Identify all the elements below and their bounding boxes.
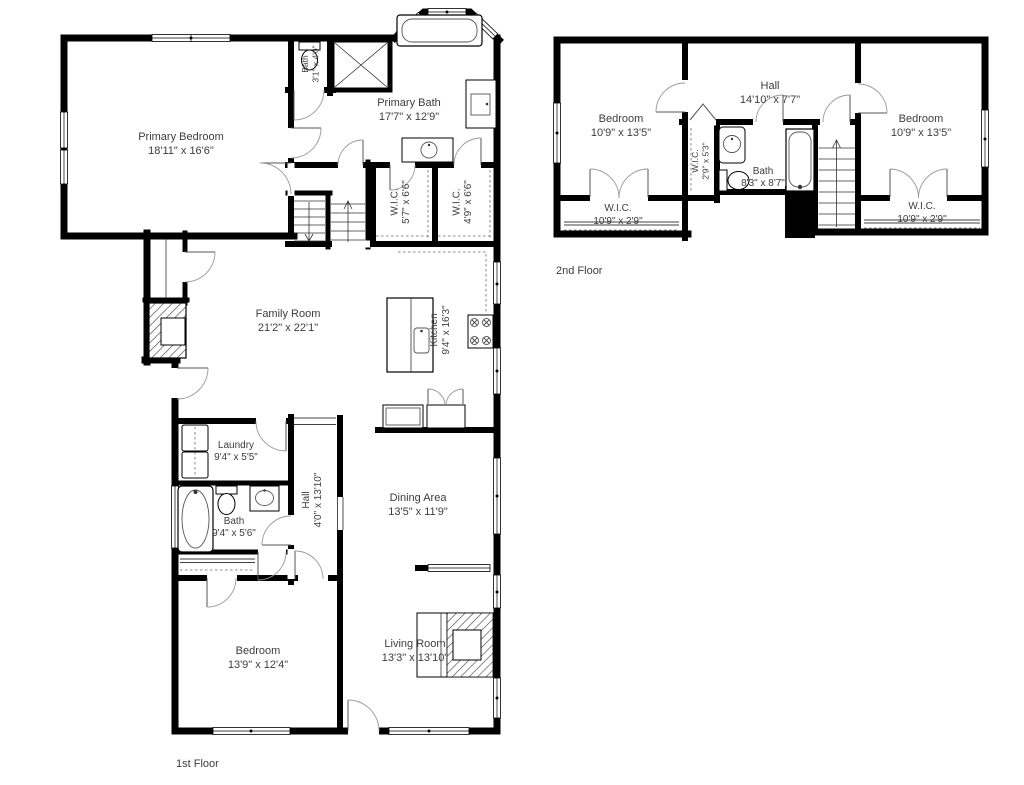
- primary-bedroom-dims: 18'11" x 16'6": [148, 145, 214, 157]
- stove-icon: [468, 315, 493, 348]
- small-bath-dims: 3'1" x 4'0": [311, 45, 321, 82]
- primary-bath-label: Primary Bath: [377, 97, 441, 109]
- wic2-dims: 4'9" x 6'6": [463, 180, 474, 224]
- hall-label: Hall: [301, 491, 312, 508]
- wic-strip-label-group: W.I.C. 2'9" x 5'3": [690, 142, 711, 179]
- bath-label: Bath: [224, 516, 245, 527]
- laundry-machines: [182, 425, 208, 478]
- hall2-label: Hall: [761, 80, 780, 92]
- bath2-sink-icon: [719, 127, 745, 163]
- wic-strip-dims: 2'9" x 5'3": [701, 142, 711, 179]
- floor-plan-drawing: Primary Bedroom 18'11" x 16'6" Primary B…: [0, 0, 1024, 785]
- second-floor-title: 2nd Floor: [556, 265, 603, 277]
- wic-right-dims: 10'9" x 2'9": [897, 214, 947, 225]
- wic2-label-group: W.I.C. 4'9" x 6'6": [452, 180, 475, 224]
- bath2-dims: 8'3" x 8'7": [741, 178, 785, 189]
- family-room-dims: 21'2" x 22'1": [258, 322, 318, 334]
- second-floor-plan: Bedroom 10'9" x 13'5" Hall 14'10" x 7'7"…: [554, 40, 989, 277]
- laundry-dims: 9'4" x 5'5": [214, 452, 258, 463]
- wic-left-label: W.I.C.: [604, 203, 631, 214]
- small-bath-label-group: Bath 3'1" x 4'0": [300, 45, 321, 82]
- wic1-label: W.I.C.: [390, 188, 401, 215]
- dining-area-dims: 13'5" x 11'9": [388, 506, 448, 518]
- wic1-label-group: W.I.C. 5'7" x 6'6": [390, 180, 413, 224]
- hall-label-group: Hall 4'0" x 13'10": [301, 472, 324, 527]
- wic-strip-label: W.I.C.: [690, 149, 700, 172]
- first-floor-plan: Primary Bedroom 18'11" x 16'6" Primary B…: [61, 9, 501, 771]
- bedroom-right-label: Bedroom: [899, 113, 944, 125]
- family-room-label: Family Room: [256, 308, 321, 320]
- bifold-door-icon: [690, 104, 716, 120]
- hall-dims: 4'0" x 13'10": [313, 472, 324, 527]
- second-floor-labels: Bedroom 10'9" x 13'5" Hall 14'10" x 7'7"…: [556, 80, 951, 277]
- living-room-dims: 13'3" x 13'10": [382, 652, 449, 664]
- primary-bath-dims: 17'7" x 12'9": [379, 111, 439, 123]
- wic-right-label: W.I.C.: [908, 201, 935, 212]
- small-bath-label: Bath: [300, 55, 310, 73]
- bath2-label: Bath: [753, 166, 774, 177]
- sink-icon: [250, 486, 279, 511]
- floor-plan-page: Primary Bedroom 18'11" x 16'6" Primary B…: [0, 0, 1024, 785]
- bedroom-label: Bedroom: [236, 645, 281, 657]
- bedroom-left-dims: 10'9" x 13'5": [591, 127, 651, 139]
- primary-bedroom-label: Primary Bedroom: [138, 131, 224, 143]
- kitchen-label: Kitchen: [429, 313, 440, 346]
- kitchen-dims: 9'4" x 16'3": [441, 305, 452, 355]
- vanity-sink-icon: [402, 138, 453, 162]
- first-floor-title: 1st Floor: [176, 758, 219, 770]
- bedroom-dims: 13'9" x 12'4": [228, 659, 288, 671]
- wic-left-dims: 10'9" x 2'9": [593, 216, 643, 227]
- bedroom-right-dims: 10'9" x 13'5": [891, 127, 951, 139]
- wic2-label: W.I.C.: [452, 188, 463, 215]
- living-room-label: Living Room: [384, 638, 445, 650]
- kitchen-cabinets: [383, 389, 465, 428]
- bath-dims: 9'4" x 5'6": [212, 528, 256, 539]
- vanity-right-icon: [466, 80, 496, 128]
- wic1-dims: 5'7" x 6'6": [401, 180, 412, 224]
- dining-area-label: Dining Area: [390, 492, 448, 504]
- bedroom-left-label: Bedroom: [599, 113, 644, 125]
- hall2-dims: 14'10" x 7'7": [740, 94, 800, 106]
- toilet-icon: [216, 486, 237, 515]
- bathtub-icon: [178, 486, 213, 552]
- primary-bathtub-icon: [397, 15, 482, 46]
- family-room-fireplace: [149, 303, 186, 358]
- bath2-tub-icon: [786, 129, 814, 191]
- second-floor-stairs: [819, 140, 856, 227]
- shower-icon: [332, 40, 390, 90]
- laundry-label: Laundry: [218, 440, 254, 451]
- chimney-block: [785, 186, 815, 238]
